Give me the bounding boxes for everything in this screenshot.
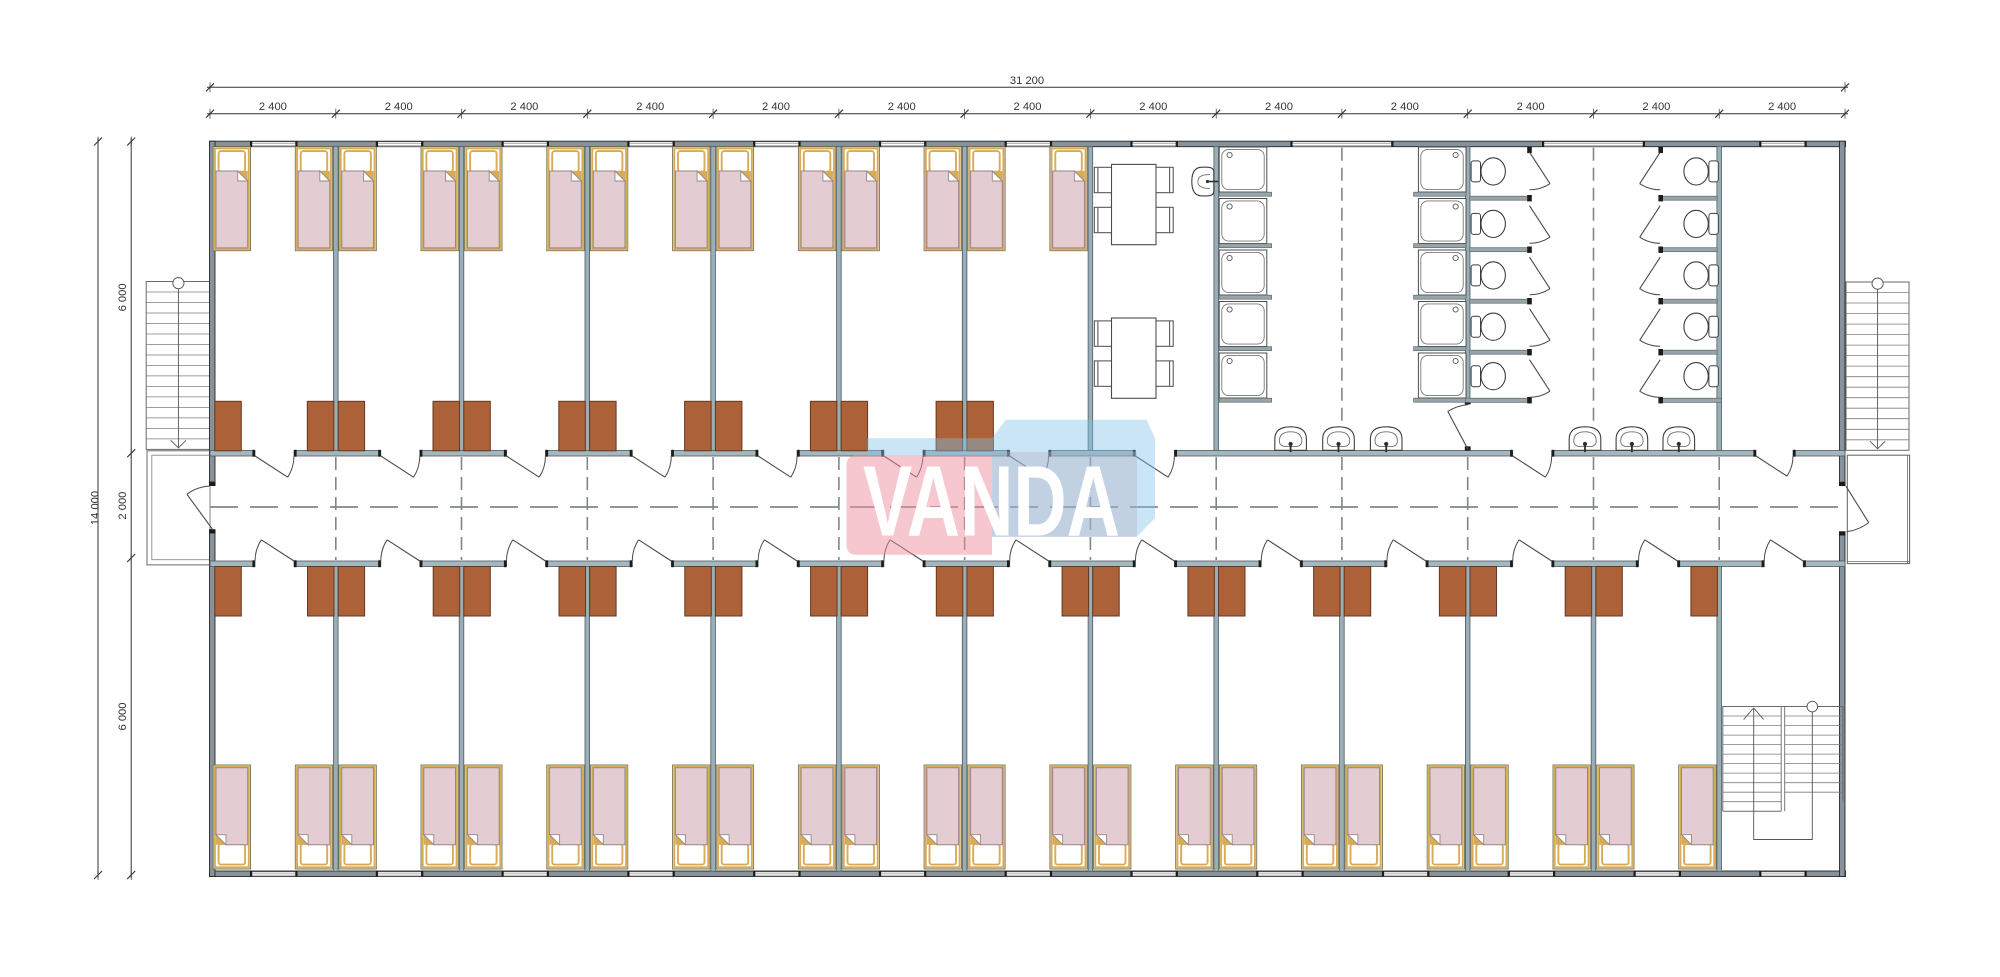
svg-text:2 400: 2 400 <box>1265 101 1293 113</box>
svg-text:2 400: 2 400 <box>510 101 538 113</box>
svg-text:2 400: 2 400 <box>259 101 287 113</box>
svg-text:2 400: 2 400 <box>385 101 413 113</box>
svg-text:2 400: 2 400 <box>636 101 664 113</box>
svg-text:31 200: 31 200 <box>1010 75 1044 87</box>
svg-text:6 000: 6 000 <box>117 703 129 731</box>
svg-text:2 400: 2 400 <box>1391 101 1419 113</box>
svg-text:14 000: 14 000 <box>90 491 102 525</box>
svg-text:2 000: 2 000 <box>117 492 129 520</box>
svg-text:2 400: 2 400 <box>1768 101 1796 113</box>
svg-text:2 400: 2 400 <box>1642 101 1670 113</box>
svg-text:2 400: 2 400 <box>888 101 916 113</box>
svg-text:VANDA: VANDA <box>863 445 1120 557</box>
svg-text:2 400: 2 400 <box>762 101 790 113</box>
svg-text:2 400: 2 400 <box>1517 101 1545 113</box>
svg-text:2 400: 2 400 <box>1014 101 1042 113</box>
svg-text:2 400: 2 400 <box>1139 101 1167 113</box>
svg-text:6 000: 6 000 <box>117 283 129 311</box>
